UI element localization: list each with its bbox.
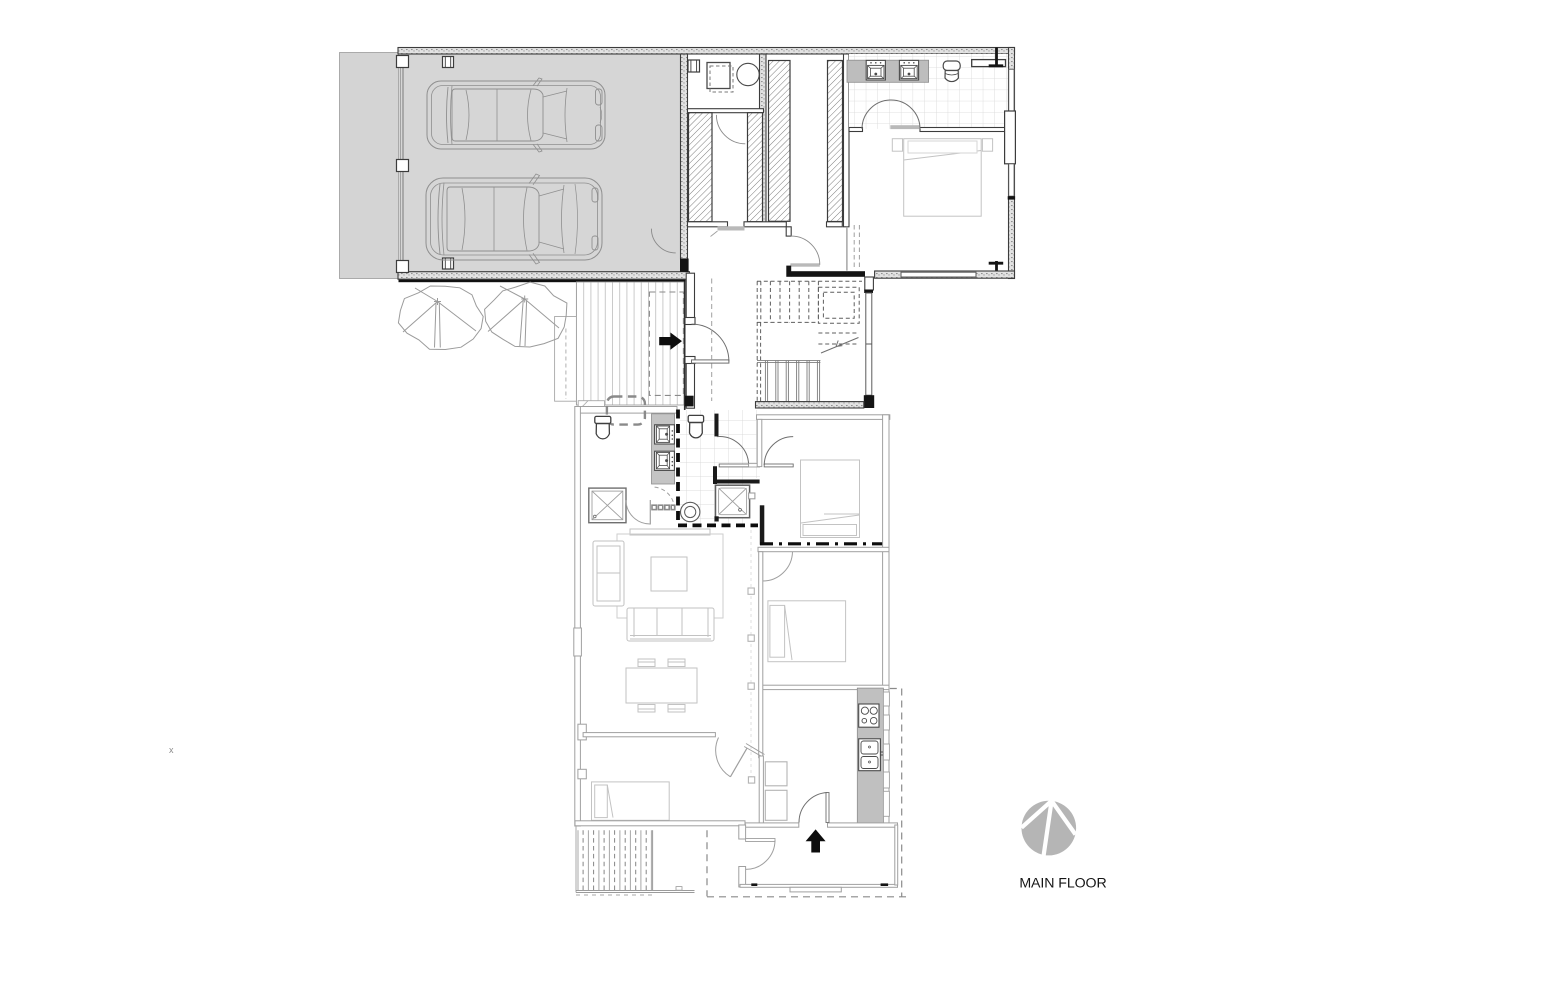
svg-text:x: x <box>169 745 174 755</box>
svg-text:MAIN FLOOR: MAIN FLOOR <box>1019 876 1106 892</box>
